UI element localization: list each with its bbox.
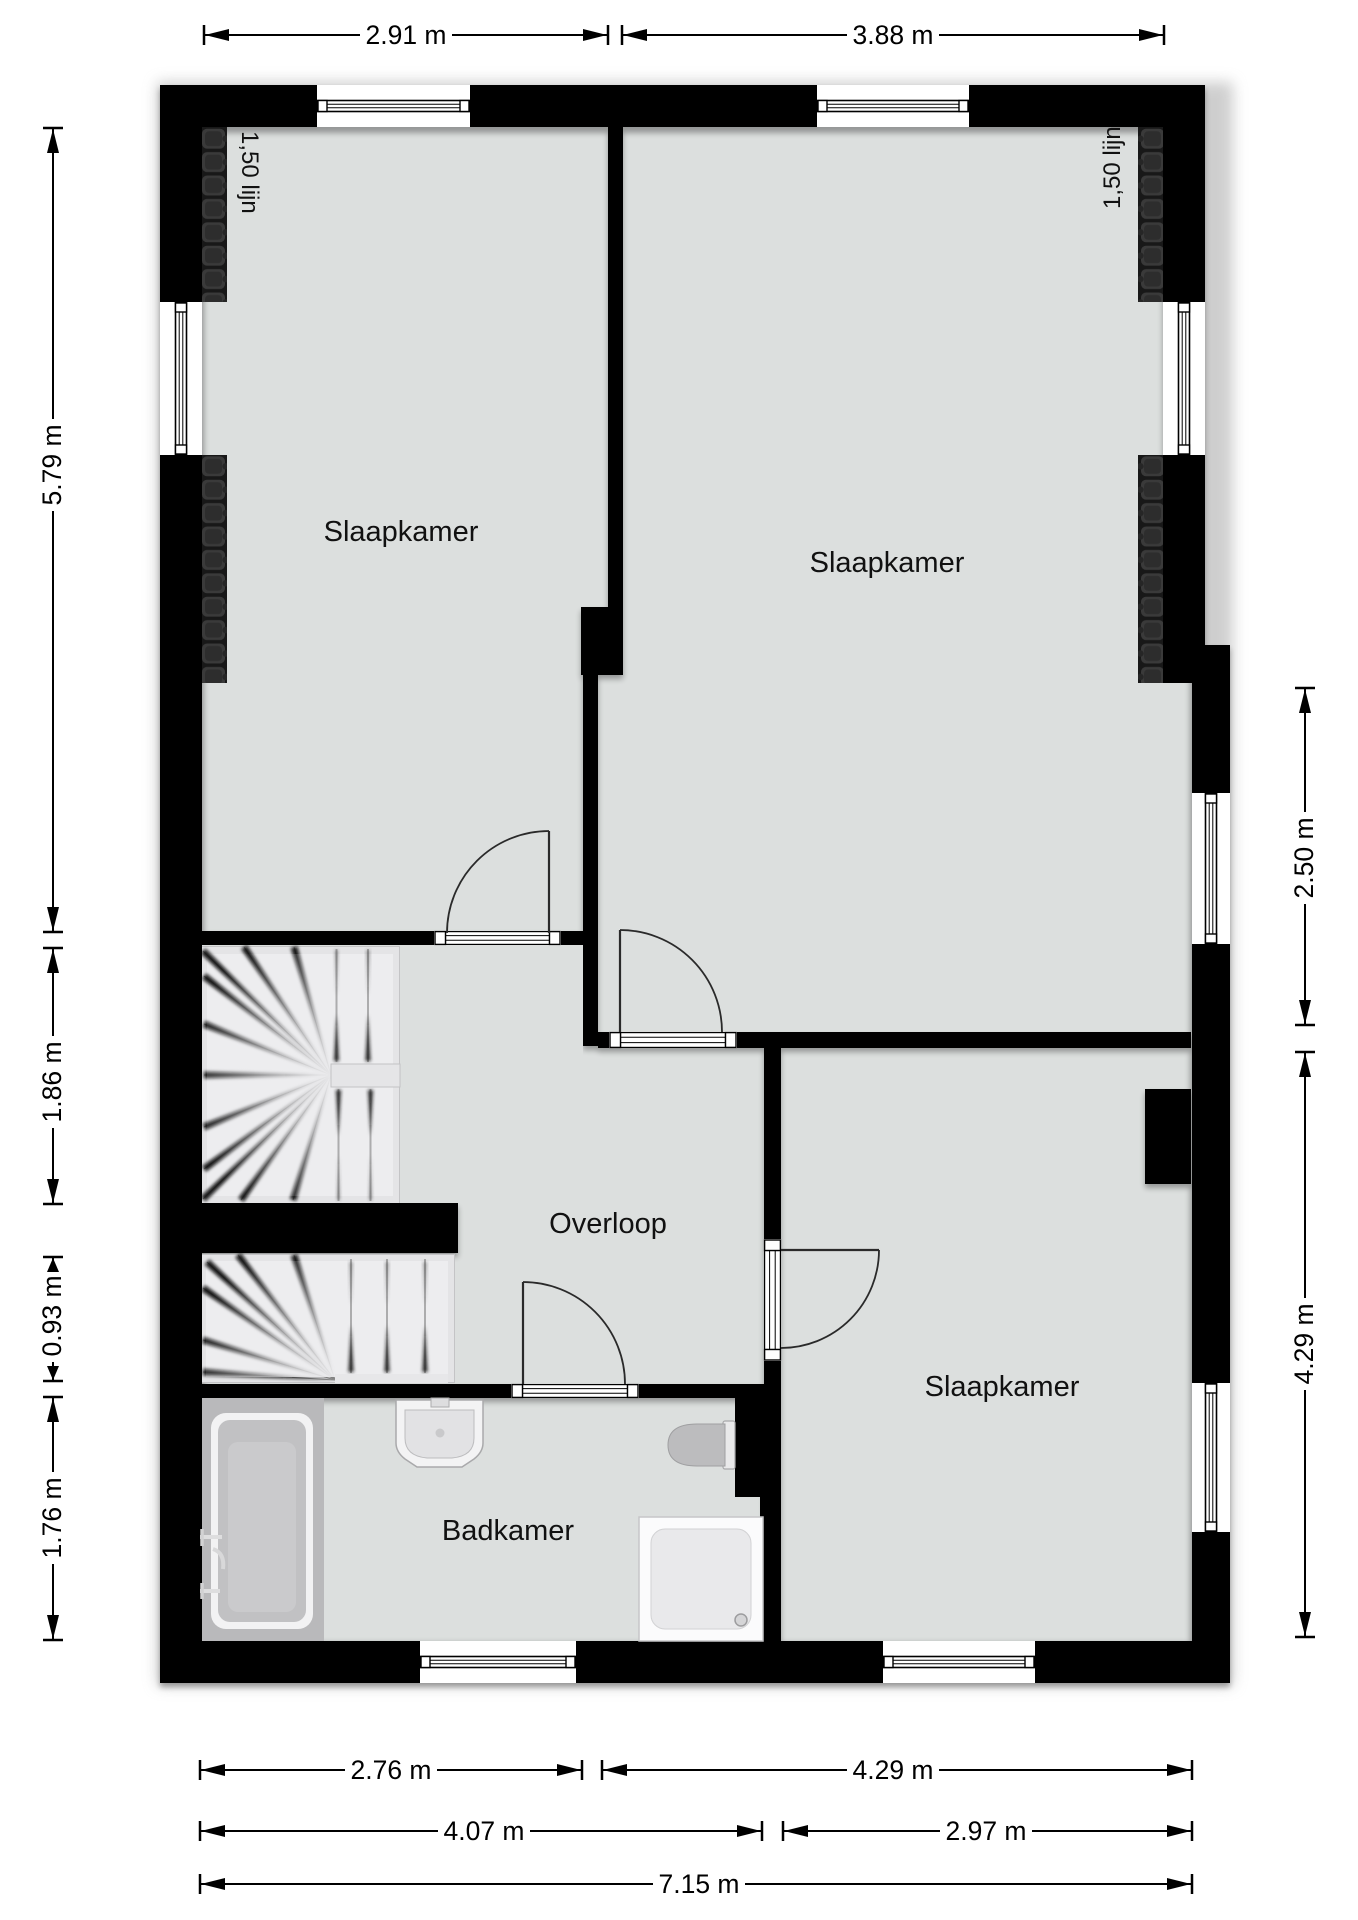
svg-text:7.15 m: 7.15 m <box>658 1869 739 1899</box>
svg-text:Overloop: Overloop <box>549 1208 667 1240</box>
svg-text:4.29 m: 4.29 m <box>852 1755 933 1785</box>
svg-text:1,50 lijn: 1,50 lijn <box>236 131 263 214</box>
svg-text:2.50 m: 2.50 m <box>1289 817 1319 898</box>
svg-text:0.93 m: 0.93 m <box>37 1275 67 1356</box>
svg-text:4.29 m: 4.29 m <box>1289 1303 1319 1384</box>
svg-text:2.97 m: 2.97 m <box>945 1816 1026 1846</box>
svg-text:Slaapkamer: Slaapkamer <box>810 547 965 579</box>
svg-text:Slaapkamer: Slaapkamer <box>925 1371 1080 1403</box>
svg-text:1.76 m: 1.76 m <box>37 1477 67 1558</box>
svg-text:1.86 m: 1.86 m <box>37 1041 67 1122</box>
svg-text:2.76 m: 2.76 m <box>350 1755 431 1785</box>
svg-text:5.79 m: 5.79 m <box>37 424 67 505</box>
svg-text:1,50 lijn: 1,50 lijn <box>1099 126 1126 209</box>
svg-text:4.07 m: 4.07 m <box>443 1816 524 1846</box>
svg-text:Badkamer: Badkamer <box>442 1515 575 1547</box>
svg-text:2.91 m: 2.91 m <box>365 20 446 50</box>
svg-text:3.88 m: 3.88 m <box>852 20 933 50</box>
svg-text:Slaapkamer: Slaapkamer <box>324 516 479 548</box>
